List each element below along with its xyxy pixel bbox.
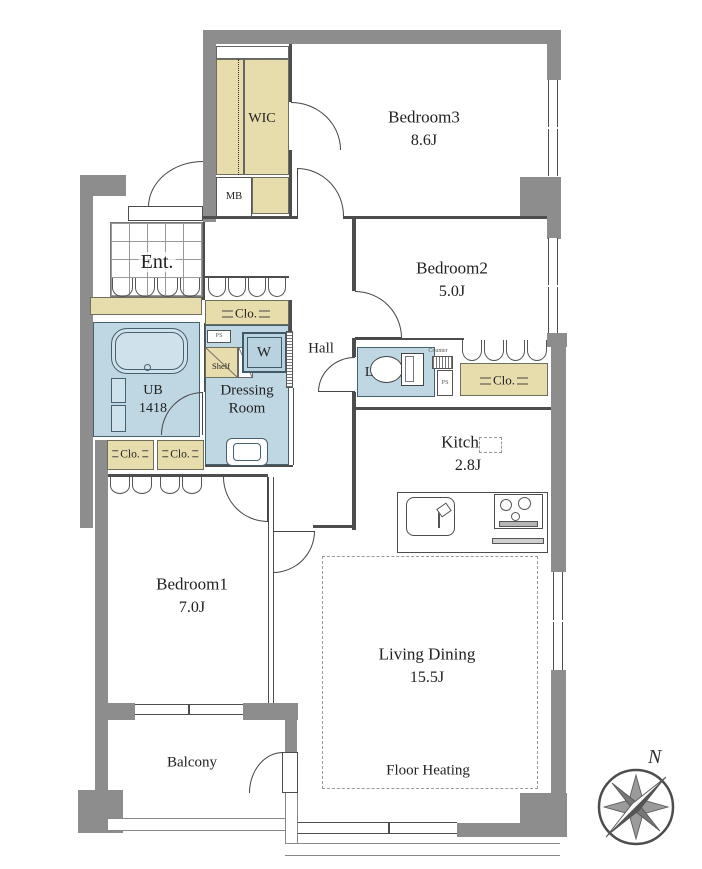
wall-kitchen-top [356,407,551,410]
bathtub-drain [144,364,151,371]
wall-step-bottom-right [520,793,567,837]
wall-entrance-block [80,175,126,196]
window-bedroom2-2 [548,287,558,333]
stove-grill [499,521,538,527]
wall-right-upper [547,44,561,80]
wall-hall-right-c [352,392,356,530]
balcony-parapet-bottom [108,818,298,831]
unit-bath-label: UB [143,384,162,398]
wic-lower-cabinet [252,177,289,214]
dressing-room-label-1: Dressing [220,384,273,399]
wall-wic-right-lower [289,150,292,216]
wic-shelf-top [216,46,289,59]
bedroom1-closet-left-label: Clo. [110,449,150,461]
toilet-tank-inner [405,356,414,382]
wall-right-kitchen [551,345,566,572]
bedroom3-area: 8.6J [411,133,437,149]
wall-hall-right-b [352,338,356,357]
wall-balcony-jamb [285,717,297,755]
lavatory-door-arc [318,357,355,392]
lavatory-counter [432,356,453,369]
bedroom2-closet-label: Clo. [478,374,530,387]
entrance-door-arc [148,161,203,207]
wall-dressing-right-upper [289,300,292,333]
shower-unit-bottom [111,405,126,432]
wall-wic-left [203,30,216,222]
window-living-bottom [295,822,457,834]
hall-closet-folding-doors [207,278,287,297]
compass-north-label: N [647,746,663,768]
kitchen-lower-shelf [492,538,544,544]
entrance-shoe-closet [90,297,202,315]
toilet-bowl [370,356,403,383]
dressing-room-label-2: Room [229,402,266,417]
refrigerator-dashed-outline [479,437,502,453]
window-bedroom3-2 [548,129,558,176]
bedroom1-closet-right-folding-doors [159,477,203,494]
living-door-arc [273,531,315,573]
kitchen-area: 2.8J [455,458,481,474]
wall-pillar-bedroom3 [520,177,561,219]
meter-box-label: MB [226,192,242,203]
compass-rose: N [590,735,702,865]
bedroom3-name: Bedroom3 [388,109,460,126]
floor-plan: WIC MB Bedroom3 8.6J Bedroom2 5.0J Ent. … [0,0,702,869]
bedroom1-door-arc [223,477,268,522]
bedroom2-area: 5.0J [439,284,465,300]
entrance-label: Ent. [139,252,176,272]
wall-bedroom3-bottom [343,216,547,219]
counter-label: Counter [428,348,447,354]
wall-bedroom1-right [268,477,274,703]
wall-left-lower [95,440,108,793]
living-dining-name: Living Dining [379,646,476,663]
floor-heating-label: Floor Heating [383,764,473,779]
wic-divider-dotted [238,59,240,175]
service-terrace-edge [285,843,560,856]
bedroom1-name: Bedroom1 [156,576,228,593]
bedroom1-closet-right-label: Clo. [160,449,200,461]
stove-burner-3 [511,512,520,521]
vanity-basin [233,443,261,461]
stove-burner-2 [518,497,531,510]
vanity-sink [226,438,268,466]
washing-machine-label: W [257,346,271,361]
balcony-label: Balcony [167,756,217,771]
kitchen-sink [406,497,455,536]
pipe-space-lav-label: PS [441,380,448,387]
bedroom2-door-arc [355,291,402,338]
wall-bedroom1-bottom-left [108,703,135,720]
wall-bedroom2-bottom [356,338,464,340]
wall-hall-bottom [313,525,356,528]
stove-burner-1 [500,499,512,511]
window-bedroom3-1 [548,80,558,127]
entrance-door-slab [128,206,203,221]
wall-bottom-right [457,823,527,837]
dressing-door-pocket [286,331,293,388]
window-living-1 [553,572,563,620]
wall-hall-right-a [352,219,356,291]
pipe-space-dressing-label: PS [215,333,222,340]
wall-right-living [551,670,566,793]
bathtub [111,328,188,374]
toilet-tank [401,353,424,386]
window-bedroom1-mullion [188,704,190,715]
bedroom3-door-arc [297,168,344,216]
bedroom1-closet-left-folding-doors [109,477,153,494]
wall-right-mid [547,219,561,239]
hall-closet-label: Clo. [220,307,272,320]
balcony-door-arc [249,752,283,793]
wall-left-upper [80,196,93,528]
balcony-door-slab [282,752,298,793]
bedroom1-area: 7.0J [179,600,205,616]
wall-top [205,30,561,44]
wic-divider-solid [243,59,245,175]
entrance-closet-folding-doors [111,278,201,297]
window-living-2 [553,622,563,670]
wic-door-arc [291,102,341,150]
unit-bath-size: 1418 [139,402,167,416]
window-bedroom2-1 [548,238,558,285]
wic-label: WIC [248,112,275,126]
living-dining-area: 15.5J [410,670,444,686]
shower-unit-top [111,378,126,403]
hall-label: Hall [308,342,334,357]
window-living-bottom-mullion [388,822,390,834]
shelf-label: Shelf [212,362,230,371]
wall-wic-right-upper [289,44,292,102]
bedroom2-name: Bedroom2 [416,260,488,277]
bedroom2-closet-folding-doors [461,340,548,361]
